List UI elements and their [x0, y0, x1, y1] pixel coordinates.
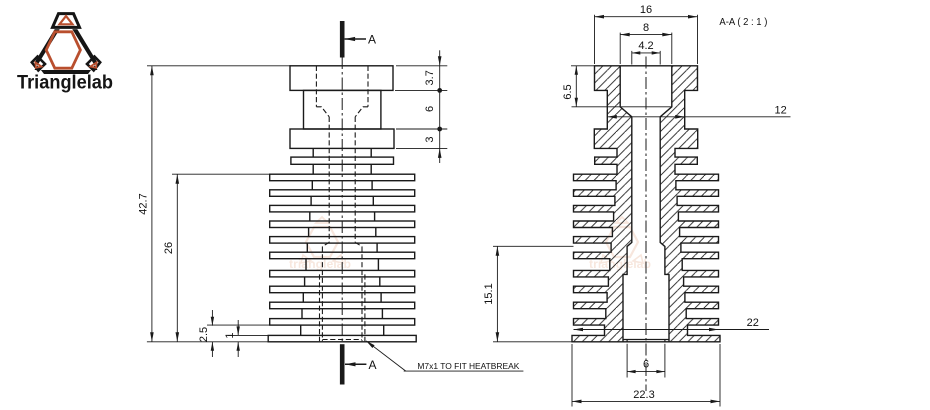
svg-text:6: 6 — [643, 358, 649, 370]
svg-text:A-A ( 2 : 1 ): A-A ( 2 : 1 ) — [719, 16, 767, 28]
svg-text:6.5: 6.5 — [562, 84, 574, 99]
svg-text:3: 3 — [424, 136, 436, 142]
svg-text:12: 12 — [774, 104, 786, 116]
svg-text:22.3: 22.3 — [633, 389, 654, 401]
svg-text:A: A — [368, 358, 376, 372]
svg-text:M7x1 TO FIT HEATBREAK: M7x1 TO FIT HEATBREAK — [417, 362, 520, 371]
svg-text:4.2: 4.2 — [638, 40, 653, 52]
svg-text:26: 26 — [163, 242, 175, 254]
svg-text:Trianglelab: Trianglelab — [17, 73, 113, 94]
svg-text:3.7: 3.7 — [424, 70, 436, 85]
svg-text:15.1: 15.1 — [483, 283, 495, 304]
svg-text:8: 8 — [643, 22, 649, 34]
svg-text:22: 22 — [747, 317, 759, 329]
svg-text:1: 1 — [224, 332, 236, 338]
svg-text:A: A — [368, 33, 376, 47]
svg-text:6: 6 — [424, 106, 436, 112]
svg-text:2.5: 2.5 — [198, 327, 210, 342]
svg-text:42.7: 42.7 — [138, 193, 150, 214]
svg-text:16: 16 — [640, 4, 652, 16]
